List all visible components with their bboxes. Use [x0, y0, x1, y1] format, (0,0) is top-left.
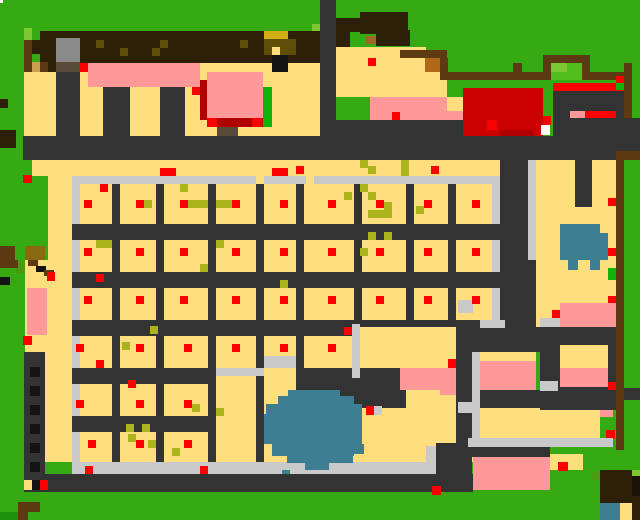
- game-viewport: [0, 0, 640, 520]
- village-map-canvas[interactable]: [0, 0, 640, 520]
